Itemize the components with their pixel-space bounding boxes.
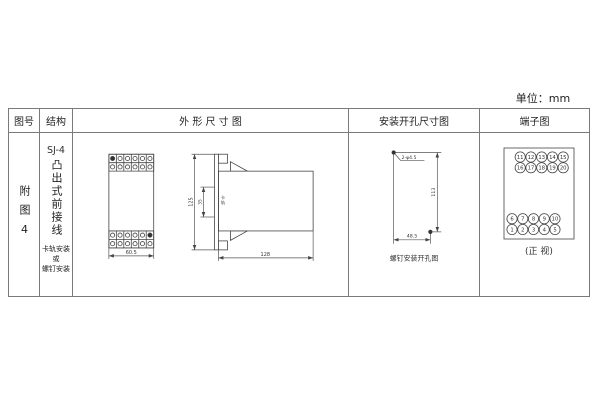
svg-text:13: 13 bbox=[538, 155, 545, 161]
front-view-strips bbox=[109, 154, 154, 248]
mounting-note-line: 卡轨安装 bbox=[42, 244, 70, 254]
svg-text:12: 12 bbox=[528, 155, 535, 161]
svg-text:5: 5 bbox=[553, 227, 556, 233]
svg-text:3: 3 bbox=[532, 227, 535, 233]
terminal-caption: (正 视) bbox=[525, 245, 553, 257]
hole-horizontal-dim: 48.5 bbox=[407, 233, 418, 239]
header-mounting-holes: 安装开孔尺寸图 bbox=[349, 109, 480, 133]
svg-text:2: 2 bbox=[521, 227, 524, 233]
model-label: SJ-4 bbox=[47, 145, 65, 156]
svg-text:8: 8 bbox=[532, 217, 536, 223]
side-height-dim: 125 bbox=[189, 197, 195, 206]
mounting-hole-top bbox=[392, 150, 396, 154]
mounting-hole-diagram: 2-φ4.5 113 48.5 螺钉安装开孔图 bbox=[349, 133, 479, 296]
hole-vertical-dim: 113 bbox=[431, 188, 437, 197]
header-figure-no: 图号 bbox=[9, 109, 40, 133]
terminal-circles: 1112131415161718192067891012345 bbox=[507, 152, 568, 235]
header-outline-dims: 外 形 尺 寸 图 bbox=[73, 109, 349, 133]
svg-text:20: 20 bbox=[560, 166, 567, 172]
svg-text:10: 10 bbox=[552, 217, 559, 223]
mounting-note-line: 螺钉安装 bbox=[42, 264, 70, 274]
rail-label: 卡轨 bbox=[221, 194, 226, 205]
unit-label: 单位：mm bbox=[500, 90, 586, 106]
svg-text:7: 7 bbox=[521, 217, 524, 223]
header-terminal-diagram: 端子图 bbox=[480, 109, 589, 133]
mounting-note-line: 或 bbox=[42, 254, 70, 264]
svg-text:6: 6 bbox=[510, 217, 514, 223]
svg-text:9: 9 bbox=[543, 217, 546, 223]
figure-number: 附图4 bbox=[16, 185, 32, 244]
svg-text:17: 17 bbox=[528, 166, 535, 172]
mounting-hole-bottom bbox=[428, 230, 432, 234]
depth-dim: 128 bbox=[261, 252, 270, 258]
svg-text:19: 19 bbox=[549, 166, 556, 172]
svg-text:11: 11 bbox=[517, 155, 524, 161]
front-width-dim: 60.5 bbox=[126, 250, 137, 256]
mounting-note: 卡轨安装 或 螺钉安装 bbox=[42, 244, 70, 274]
front-view-drawing: 60.5 bbox=[109, 154, 154, 259]
outline-drawing: 60.5 125 35 卡轨 bbox=[73, 133, 348, 296]
svg-text:18: 18 bbox=[538, 166, 545, 172]
terminal-diagram-cell: 1112131415161718192067891012345 (正 视) bbox=[480, 133, 589, 296]
svg-text:15: 15 bbox=[560, 155, 567, 161]
svg-text:14: 14 bbox=[549, 155, 556, 161]
svg-text:16: 16 bbox=[517, 166, 524, 172]
svg-text:1: 1 bbox=[510, 227, 513, 233]
header-structure: 结构 bbox=[40, 109, 73, 133]
svg-text:4: 4 bbox=[543, 227, 547, 233]
terminal-diagram-drawing: 1112131415161718192067891012345 (正 视) bbox=[480, 133, 589, 296]
holes-spec-label: 2-φ4.5 bbox=[402, 155, 417, 161]
side-view-drawing: 125 35 卡轨 128 bbox=[189, 154, 314, 261]
datasheet-page: 单位：mm 图号 结构 外 形 尺 寸 图 安装开孔尺寸图 端子图 附图4 SJ… bbox=[0, 0, 600, 400]
structure-type-label: 凸出式前接线 bbox=[48, 159, 64, 237]
rail-gap-dim: 35 bbox=[198, 199, 204, 205]
mounting-caption: 螺钉安装开孔图 bbox=[390, 254, 439, 263]
outline-drawing-cell: 60.5 125 35 卡轨 bbox=[73, 133, 349, 296]
structure-cell: SJ-4 凸出式前接线 卡轨安装 或 螺钉安装 bbox=[40, 133, 73, 296]
spec-table: 图号 结构 外 形 尺 寸 图 安装开孔尺寸图 端子图 附图4 SJ-4 凸出式… bbox=[8, 108, 590, 297]
figure-number-cell: 附图4 bbox=[9, 133, 40, 296]
mounting-hole-cell: 2-φ4.5 113 48.5 螺钉安装开孔图 bbox=[349, 133, 480, 296]
